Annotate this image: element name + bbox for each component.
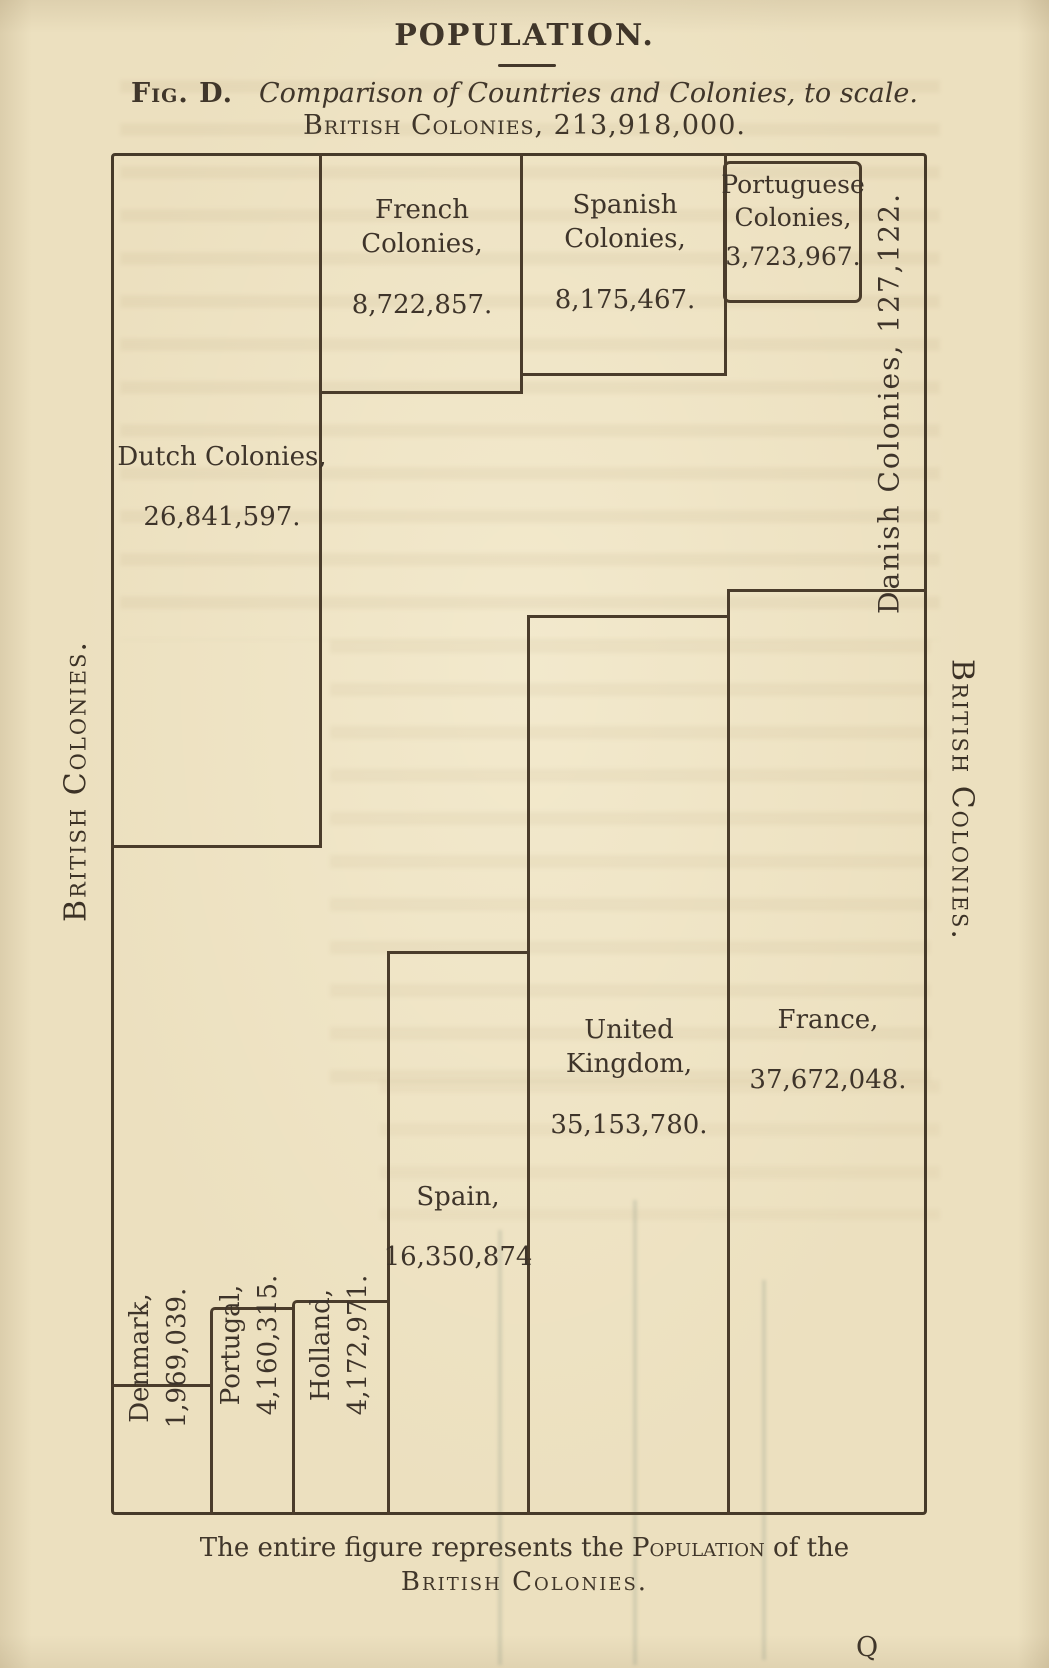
dutch-colonies-name: Dutch Colonies, — [117, 442, 326, 472]
spanish-colonies-label: Spanish Colonies, 8,175,467. — [555, 188, 696, 317]
figure-note-line-2: British Colonies. — [0, 1567, 1049, 1597]
figure-caption-line: Fig. D.Comparison of Countries and Colon… — [0, 78, 1049, 109]
portugal-label: Portugal, 4,160,315. — [214, 1275, 286, 1416]
denmark-name: Denmark, — [123, 1288, 158, 1429]
left-british-colonies-label: British Colonies. — [59, 640, 94, 922]
holland-name: Holland, — [304, 1275, 339, 1416]
scanned-book-page: POPULATION. Fig. D.Comparison of Countri… — [0, 0, 1049, 1668]
portugal-name: Portugal, — [214, 1275, 249, 1416]
spain-name: Spain, — [416, 1182, 499, 1212]
holland-value: 4,172,971. — [341, 1275, 376, 1416]
title-rule — [498, 64, 556, 67]
portuguese-colonies-value: 3,723,967. — [721, 240, 864, 273]
note-post: of the — [765, 1533, 849, 1563]
danish-colonies-label: Danish Colonies, 127,122. — [873, 192, 906, 614]
portuguese-colonies-name-2: Colonies, — [735, 203, 852, 232]
dutch-colonies-value: 26,841,597. — [117, 500, 326, 534]
portuguese-colonies-name-1: Portuguese — [721, 170, 864, 199]
french-colonies-label: French Colonies, 8,722,857. — [352, 193, 493, 322]
printer-signature-mark: Q — [856, 1632, 878, 1663]
dutch-colonies-label: Dutch Colonies, 26,841,597. — [117, 440, 326, 535]
figure-caption: Comparison of Countries and Colonies, to… — [259, 78, 918, 109]
page-title: POPULATION. — [0, 18, 1049, 53]
spanish-colonies-value: 8,175,467. — [555, 283, 696, 317]
total-population-line: British Colonies, 213,918,000. — [0, 110, 1049, 141]
spain-value: 16,350,874 — [384, 1240, 533, 1274]
figure-number: Fig. D. — [131, 78, 233, 109]
united-kingdom-name-2: Kingdom, — [566, 1049, 692, 1079]
spain-label: Spain, 16,350,874 — [384, 1180, 533, 1275]
french-colonies-value: 8,722,857. — [352, 288, 493, 322]
right-british-colonies-label: British Colonies. — [945, 659, 980, 941]
denmark-value: 1,969,039. — [160, 1288, 195, 1429]
united-kingdom-value: 35,153,780. — [550, 1108, 707, 1142]
spanish-colonies-name-2: Colonies, — [564, 224, 686, 254]
france-value: 37,672,048. — [749, 1063, 906, 1097]
french-colonies-name-2: Colonies, — [361, 229, 483, 259]
french-colonies-name-1: French — [375, 195, 469, 225]
denmark-label: Denmark, 1,969,039. — [123, 1288, 195, 1429]
note-pre: The entire figure represents the — [200, 1533, 632, 1563]
united-kingdom-label: United Kingdom, 35,153,780. — [550, 1013, 707, 1142]
figure-note-line-1: The entire figure represents the Populat… — [0, 1533, 1049, 1563]
note-population-word: Population — [632, 1533, 765, 1563]
france-label: France, 37,672,048. — [749, 1003, 906, 1098]
holland-label: Holland, 4,172,971. — [304, 1275, 376, 1416]
portugal-value: 4,160,315. — [251, 1275, 286, 1416]
united-kingdom-name-1: United — [584, 1015, 673, 1045]
spanish-colonies-name-1: Spanish — [572, 190, 677, 220]
portuguese-colonies-label: Portuguese Colonies, 3,723,967. — [721, 168, 864, 273]
france-name: France, — [778, 1005, 879, 1035]
